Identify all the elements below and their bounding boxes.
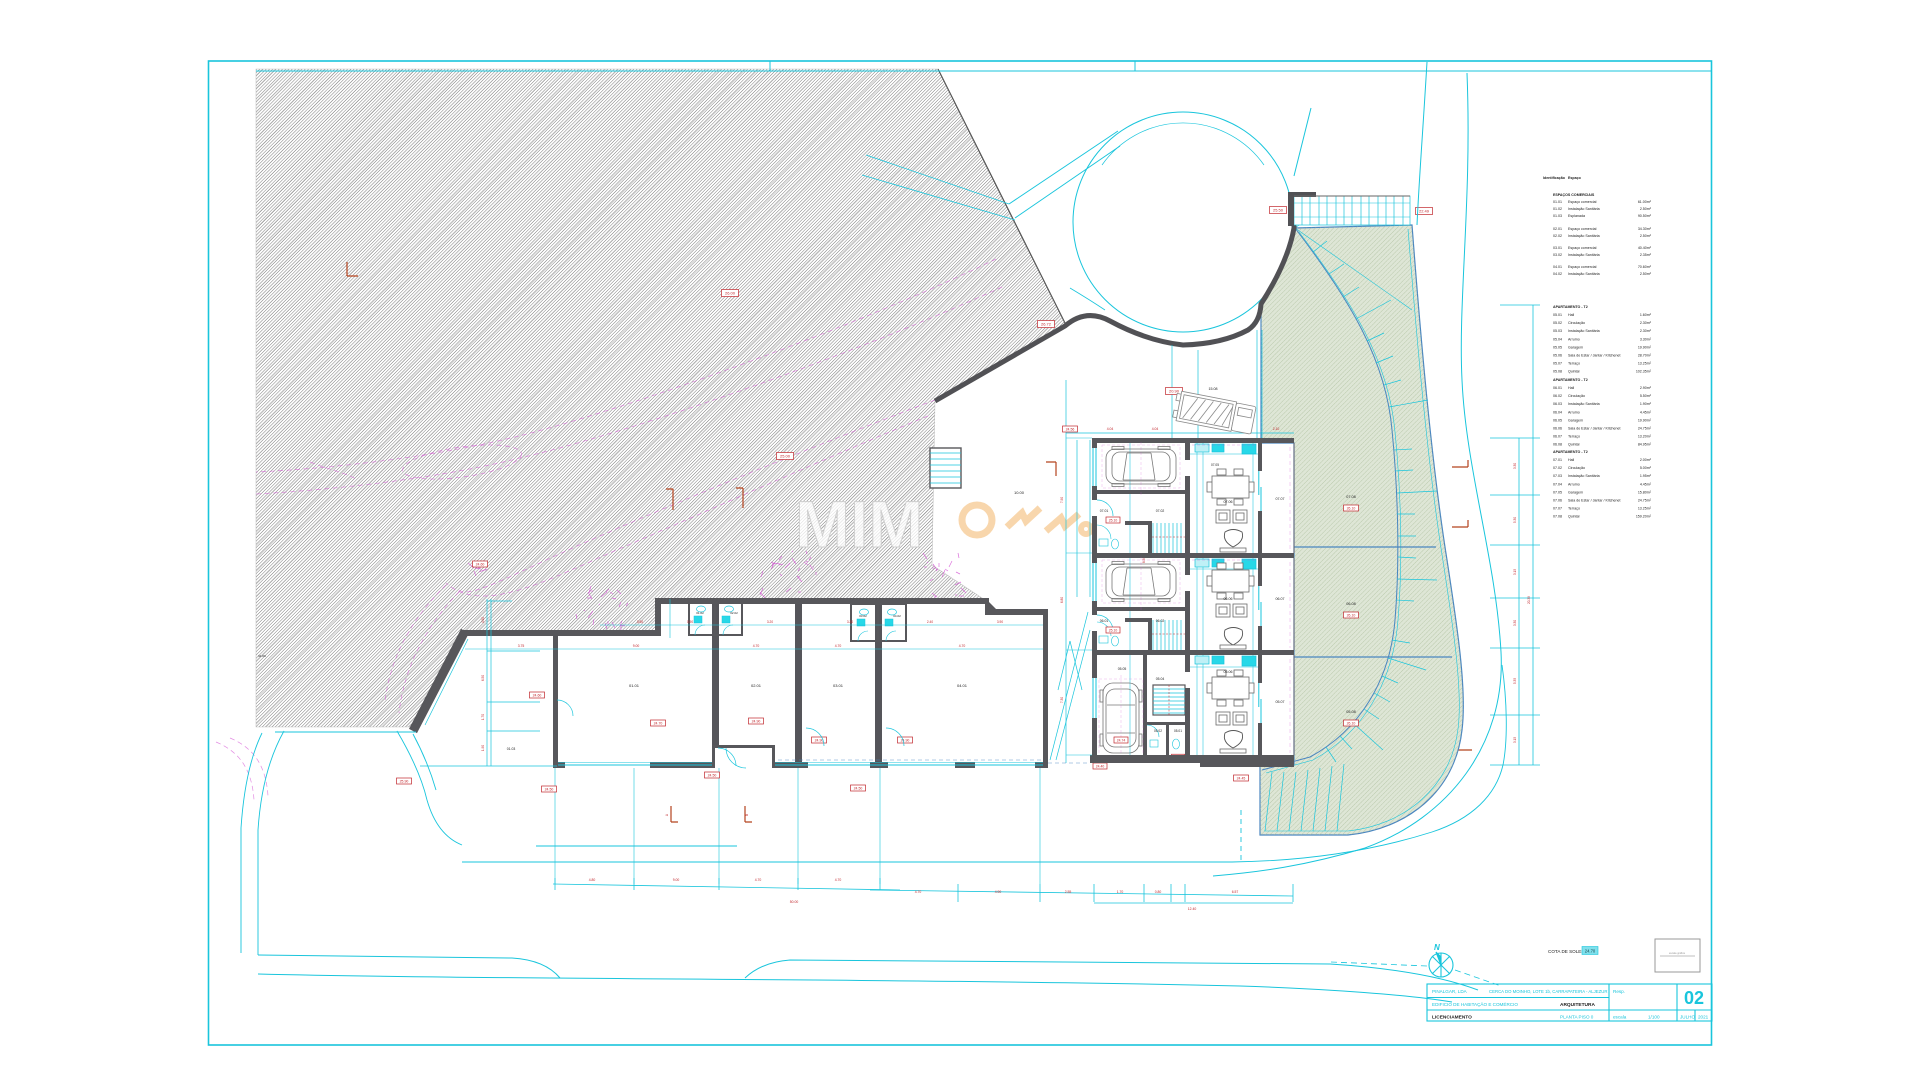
svg-text:Espaço comercial: Espaço comercial (1568, 227, 1597, 231)
svg-text:4.70: 4.70 (753, 644, 760, 648)
svg-text:1.95m²: 1.95m² (1640, 474, 1652, 478)
svg-text:06.01: 06.01 (1553, 386, 1562, 390)
svg-text:9.00: 9.00 (673, 878, 680, 882)
svg-text:3.15: 3.15 (1513, 569, 1517, 575)
svg-text:06.05: 06.05 (1553, 418, 1562, 422)
svg-text:ARQUITETURA: ARQUITETURA (1560, 1002, 1595, 1008)
svg-text:24.50: 24.50 (708, 774, 717, 778)
svg-text:84.95m²: 84.95m² (1638, 443, 1652, 447)
svg-text:24.70: 24.70 (654, 722, 663, 726)
svg-text:34.30m²: 34.30m² (1638, 227, 1652, 231)
svg-text:06.01: 06.01 (1100, 619, 1109, 623)
svg-text:22.49: 22.49 (1419, 209, 1430, 214)
svg-text:05.06: 05.06 (1224, 670, 1233, 674)
svg-text:1.90: 1.90 (481, 745, 485, 751)
svg-text:24.50: 24.50 (545, 788, 554, 792)
svg-text:06.04: 06.04 (1553, 410, 1562, 414)
svg-text:Espaço: Espaço (1568, 176, 1582, 180)
svg-text:5.50m²: 5.50m² (1640, 394, 1652, 398)
svg-text:3.30m²: 3.30m² (1640, 337, 1652, 341)
svg-text:0.90: 0.90 (687, 620, 693, 624)
svg-text:24.45: 24.45 (1237, 777, 1246, 781)
svg-text:2.90m²: 2.90m² (1640, 386, 1652, 390)
svg-text:04.01: 04.01 (957, 683, 968, 688)
svg-text:24.56: 24.56 (1066, 428, 1075, 432)
svg-text:B: B (745, 814, 749, 816)
svg-text:06.03: 06.03 (1553, 402, 1562, 406)
svg-text:01.03: 01.03 (1553, 214, 1562, 218)
svg-text:Circulação: Circulação (1568, 321, 1585, 325)
svg-text:Garagem: Garagem (1568, 490, 1583, 494)
svg-text:5.30: 5.30 (1513, 517, 1517, 523)
svg-text:1.60m²: 1.60m² (1640, 313, 1652, 317)
svg-text:70.60m²: 70.60m² (1638, 265, 1652, 269)
svg-text:28.70m²: 28.70m² (1638, 354, 1652, 358)
svg-text:05.03: 05.03 (1553, 329, 1562, 333)
svg-text:05.08: 05.08 (1346, 710, 1356, 714)
svg-text:61.00m²: 61.00m² (1638, 200, 1652, 204)
svg-text:24.70: 24.70 (1585, 949, 1596, 954)
svg-text:Instalação Sanitária: Instalação Sanitária (1568, 402, 1600, 406)
svg-text:Hall: Hall (1568, 313, 1574, 317)
svg-text:04.02: 04.02 (893, 614, 901, 618)
svg-text:91.06: 91.06 (258, 654, 266, 658)
svg-text:07.07: 07.07 (1276, 497, 1285, 501)
svg-text:05.01: 05.01 (1553, 313, 1562, 317)
svg-text:4.90: 4.90 (995, 890, 1002, 894)
svg-text:01.03: 01.03 (507, 747, 516, 751)
svg-text:07.03: 07.03 (1553, 474, 1562, 478)
svg-text:24.90: 24.90 (815, 739, 824, 743)
svg-text:1.90m²: 1.90m² (1640, 402, 1652, 406)
svg-text:07.08: 07.08 (1553, 515, 1562, 519)
svg-text:7.90: 7.90 (1060, 497, 1064, 503)
svg-text:Espaço comercial: Espaço comercial (1568, 200, 1597, 204)
svg-text:Instalação Sanitária: Instalação Sanitária (1568, 272, 1600, 276)
svg-text:06.07: 06.07 (1553, 435, 1562, 439)
svg-text:4.04: 4.04 (1152, 427, 1159, 431)
svg-text:escala: escala (1613, 1015, 1627, 1020)
svg-text:6.57: 6.57 (1232, 890, 1239, 894)
svg-text:EDIFICIO DE HABITAÇÃO E COMÉRC: EDIFICIO DE HABITAÇÃO E COMÉRCIO (1432, 1001, 1518, 1007)
svg-text:Instalação Sanitária: Instalação Sanitária (1568, 329, 1600, 333)
svg-text:Circulação: Circulação (1568, 394, 1585, 398)
svg-text:24.74: 24.74 (1117, 739, 1126, 743)
svg-text:Garagem: Garagem (1568, 418, 1583, 422)
svg-text:Quintal: Quintal (1568, 443, 1580, 447)
svg-text:3.75: 3.75 (518, 644, 525, 648)
svg-text:Hall: Hall (1568, 458, 1574, 462)
svg-text:PLANTA PISO 0: PLANTA PISO 0 (1560, 1015, 1594, 1020)
svg-text:5.00m²: 5.00m² (1640, 466, 1652, 470)
svg-text:2.55: 2.55 (1065, 890, 1072, 894)
svg-text:4.70: 4.70 (959, 644, 966, 648)
svg-text:24.90: 24.90 (752, 720, 761, 724)
svg-text:01.01: 01.01 (1553, 200, 1562, 204)
svg-text:Espaço comercial: Espaço comercial (1568, 265, 1597, 269)
svg-text:07.05: 07.05 (1553, 490, 1562, 494)
svg-text:24.50: 24.50 (854, 787, 863, 791)
svg-text:20.39: 20.39 (1527, 596, 1531, 604)
svg-text:01.01: 01.01 (629, 683, 640, 688)
svg-text:Sala de Estar / Jantar / Kitch: Sala de Estar / Jantar / Kitchenet (1568, 499, 1621, 503)
svg-text:24.60: 24.60 (476, 563, 485, 567)
svg-text:159.20m²: 159.20m² (1636, 515, 1652, 519)
svg-text:escala gráfica: escala gráfica (1669, 951, 1686, 955)
svg-text:4.70: 4.70 (915, 890, 922, 894)
svg-text:2.00m²: 2.00m² (1640, 458, 1652, 462)
svg-text:05.01: 05.01 (1174, 729, 1182, 733)
svg-text:13.25m²: 13.25m² (1638, 362, 1652, 366)
svg-text:05.04: 05.04 (1553, 337, 1562, 341)
svg-text:4.80: 4.80 (589, 878, 596, 882)
svg-text:2.50m²: 2.50m² (1640, 272, 1652, 276)
svg-text:1.70: 1.70 (1117, 890, 1124, 894)
svg-text:ESPAÇOS COMERCIAIS: ESPAÇOS COMERCIAIS (1553, 193, 1595, 197)
svg-text:Identificação: Identificação (1543, 176, 1566, 180)
svg-text:0.80: 0.80 (1155, 890, 1162, 894)
svg-text:40.40m²: 40.40m² (1638, 246, 1652, 250)
svg-text:102.35m²: 102.35m² (1636, 370, 1652, 374)
svg-text:12.40: 12.40 (1188, 907, 1197, 911)
svg-text:9.00: 9.00 (633, 644, 640, 648)
svg-text:50.00: 50.00 (790, 900, 799, 904)
svg-text:06.06: 06.06 (1224, 597, 1233, 601)
svg-text:4.70: 4.70 (755, 878, 762, 882)
svg-text:10.00: 10.00 (1014, 490, 1025, 495)
svg-text:2.50m²: 2.50m² (1640, 234, 1652, 238)
svg-text:15.80m²: 15.80m² (1638, 490, 1652, 494)
svg-text:13.20m²: 13.20m² (1638, 435, 1652, 439)
svg-text:02: 02 (1684, 988, 1704, 1008)
svg-text:2.30m²: 2.30m² (1640, 329, 1652, 333)
svg-text:07.08: 07.08 (1346, 495, 1356, 499)
svg-text:6.80: 6.80 (1060, 597, 1064, 603)
svg-text:7.30: 7.30 (1060, 697, 1064, 703)
svg-text:Sala de Estar / Jantar / Kitch: Sala de Estar / Jantar / Kitchenet (1568, 427, 1621, 431)
svg-text:03.01: 03.01 (833, 683, 844, 688)
svg-text:Sala de Estar / Jantar / Kitch: Sala de Estar / Jantar / Kitchenet (1568, 354, 1621, 358)
svg-text:90.50m²: 90.50m² (1638, 214, 1652, 218)
svg-text:06.02: 06.02 (1156, 619, 1165, 623)
svg-text:3.30: 3.30 (1513, 463, 1517, 469)
svg-text:2.50m²: 2.50m² (1640, 207, 1652, 211)
svg-text:Resp.: Resp. (1613, 989, 1625, 994)
svg-text:4.70: 4.70 (835, 878, 842, 882)
svg-text:24.60: 24.60 (533, 694, 542, 698)
svg-text:4.04: 4.04 (1107, 427, 1114, 431)
svg-text:02.01: 02.01 (751, 683, 762, 688)
svg-text:CERCA DO MOINHO, LOTE 1b, CARR: CERCA DO MOINHO, LOTE 1b, CARRAPATEIRA -… (1489, 989, 1608, 994)
svg-text:05.08: 05.08 (1553, 370, 1562, 374)
svg-text:N: N (1434, 943, 1440, 952)
svg-text:Instalação Sanitária: Instalação Sanitária (1568, 234, 1600, 238)
svg-text:4.45m²: 4.45m² (1640, 482, 1652, 486)
svg-text:JULHO: JULHO (1680, 1015, 1695, 1020)
svg-text:Terraço: Terraço (1568, 435, 1580, 439)
svg-text:26.10: 26.10 (1347, 507, 1356, 511)
svg-text:3.90: 3.90 (637, 620, 643, 624)
svg-text:25.10: 25.10 (1109, 519, 1118, 523)
svg-text:4.70: 4.70 (835, 644, 842, 648)
svg-text:Terraço: Terraço (1568, 362, 1580, 366)
svg-text:26.10: 26.10 (1347, 722, 1356, 726)
svg-text:25.10: 25.10 (1109, 629, 1118, 633)
svg-text:PINALGAR, LDA: PINALGAR, LDA (1432, 989, 1468, 994)
svg-text:Arrumo: Arrumo (1568, 337, 1580, 341)
svg-text:6.50: 6.50 (481, 675, 485, 681)
svg-text:24.40: 24.40 (1096, 765, 1105, 769)
svg-text:3.20: 3.20 (847, 620, 853, 624)
svg-text:25.50: 25.50 (1273, 208, 1284, 213)
svg-text:19.90m²: 19.90m² (1638, 418, 1652, 422)
svg-text:05.02: 05.02 (1154, 729, 1162, 733)
svg-text:2.30m²: 2.30m² (1640, 321, 1652, 325)
svg-text:06.07: 06.07 (1276, 597, 1285, 601)
svg-text:MIM: MIM (795, 487, 923, 561)
svg-text:04.02: 04.02 (1553, 272, 1562, 276)
svg-text:05.07: 05.07 (1553, 362, 1562, 366)
svg-text:4.45m²: 4.45m² (1640, 410, 1652, 414)
svg-text:04.01: 04.01 (1553, 265, 1562, 269)
svg-text:3.15: 3.15 (1513, 737, 1517, 743)
svg-text:1/100: 1/100 (1648, 1015, 1660, 1020)
svg-text:05.06: 05.06 (1553, 354, 1562, 358)
svg-text:26.72: 26.72 (1041, 322, 1052, 327)
svg-text:24.90: 24.90 (901, 739, 910, 743)
svg-text:07.06: 07.06 (1224, 500, 1233, 504)
svg-text:07.05: 07.05 (1211, 463, 1219, 467)
svg-text:03.01: 03.01 (1553, 246, 1562, 250)
svg-text:Terraço: Terraço (1568, 507, 1580, 511)
svg-text:2.40: 2.40 (927, 620, 933, 624)
svg-text:05.05: 05.05 (1553, 345, 1562, 349)
svg-text:Circulação: Circulação (1568, 466, 1585, 470)
svg-text:3.90: 3.90 (997, 620, 1003, 624)
svg-text:06.08: 06.08 (1553, 443, 1562, 447)
svg-text:07.01: 07.01 (1553, 458, 1562, 462)
svg-text:Arrumo: Arrumo (1568, 482, 1580, 486)
svg-text:20.90: 20.90 (1169, 389, 1180, 394)
svg-text:Hall: Hall (1568, 386, 1574, 390)
svg-text:02.02: 02.02 (1553, 234, 1562, 238)
svg-text:Esplanada: Esplanada (1568, 214, 1585, 218)
svg-text:02.01: 02.01 (1553, 227, 1562, 231)
svg-text:5.35: 5.35 (1513, 678, 1517, 684)
svg-text:APARTAMENTO - T2: APARTAMENTO - T2 (1553, 305, 1588, 309)
svg-text:07.01: 07.01 (1100, 509, 1109, 513)
svg-text:07.06: 07.06 (1553, 499, 1562, 503)
svg-text:Arrumo: Arrumo (1568, 410, 1580, 414)
svg-text:01.02: 01.02 (696, 611, 704, 615)
svg-text:2021: 2021 (1698, 1015, 1709, 1020)
svg-text:1.70: 1.70 (481, 714, 485, 720)
svg-text:13.25m²: 13.25m² (1638, 507, 1652, 511)
svg-text:06.06: 06.06 (1553, 427, 1562, 431)
svg-text:2.10: 2.10 (1273, 427, 1280, 431)
svg-text:Instalação Sanitária: Instalação Sanitária (1568, 474, 1600, 478)
svg-text:03.02: 03.02 (859, 614, 867, 618)
svg-text:2.35m²: 2.35m² (1640, 253, 1652, 257)
svg-text:06.02: 06.02 (1553, 394, 1562, 398)
svg-text:26.10: 26.10 (1347, 614, 1356, 618)
svg-text:07.07: 07.07 (1553, 507, 1562, 511)
svg-text:APARTAMENTO - T2: APARTAMENTO - T2 (1553, 450, 1588, 454)
svg-text:06.08: 06.08 (1346, 602, 1356, 606)
svg-text:24.75m²: 24.75m² (1638, 499, 1652, 503)
svg-text:APARTAMENTO - T2: APARTAMENTO - T2 (1553, 378, 1588, 382)
svg-text:25.00: 25.00 (780, 454, 791, 459)
svg-text:Quintal: Quintal (1568, 515, 1580, 519)
svg-text:01.02: 01.02 (1553, 207, 1562, 211)
svg-text:LICENCIAMENTO: LICENCIAMENTO (1432, 1015, 1472, 1021)
svg-text:05.05: 05.05 (1118, 667, 1127, 671)
svg-text:15.08: 15.08 (1209, 387, 1218, 391)
svg-text:Instalação Sanitária: Instalação Sanitária (1568, 253, 1600, 257)
svg-text:05.07: 05.07 (1276, 700, 1285, 704)
svg-text:4.50: 4.50 (481, 617, 485, 623)
svg-text:Instalação Sanitária: Instalação Sanitária (1568, 207, 1600, 211)
svg-text:3.20: 3.20 (767, 620, 773, 624)
svg-text:07.02: 07.02 (1553, 466, 1562, 470)
svg-text:05.04: 05.04 (1156, 677, 1165, 681)
svg-text:03.02: 03.02 (1553, 253, 1562, 257)
svg-text:3.30: 3.30 (1513, 620, 1517, 626)
svg-text:26.00: 26.00 (725, 291, 736, 296)
svg-text:07.02: 07.02 (1156, 509, 1165, 513)
svg-text:05.02: 05.02 (1553, 321, 1562, 325)
svg-text:Garagem: Garagem (1568, 345, 1583, 349)
svg-text:07.04: 07.04 (1553, 482, 1562, 486)
svg-text:Espaço comercial: Espaço comercial (1568, 246, 1597, 250)
svg-text:25.90: 25.90 (400, 780, 409, 784)
svg-text:Quintal: Quintal (1568, 370, 1580, 374)
svg-text:24.75m²: 24.75m² (1638, 427, 1652, 431)
svg-text:19.90m²: 19.90m² (1638, 345, 1652, 349)
svg-text:02.02: 02.02 (730, 611, 738, 615)
